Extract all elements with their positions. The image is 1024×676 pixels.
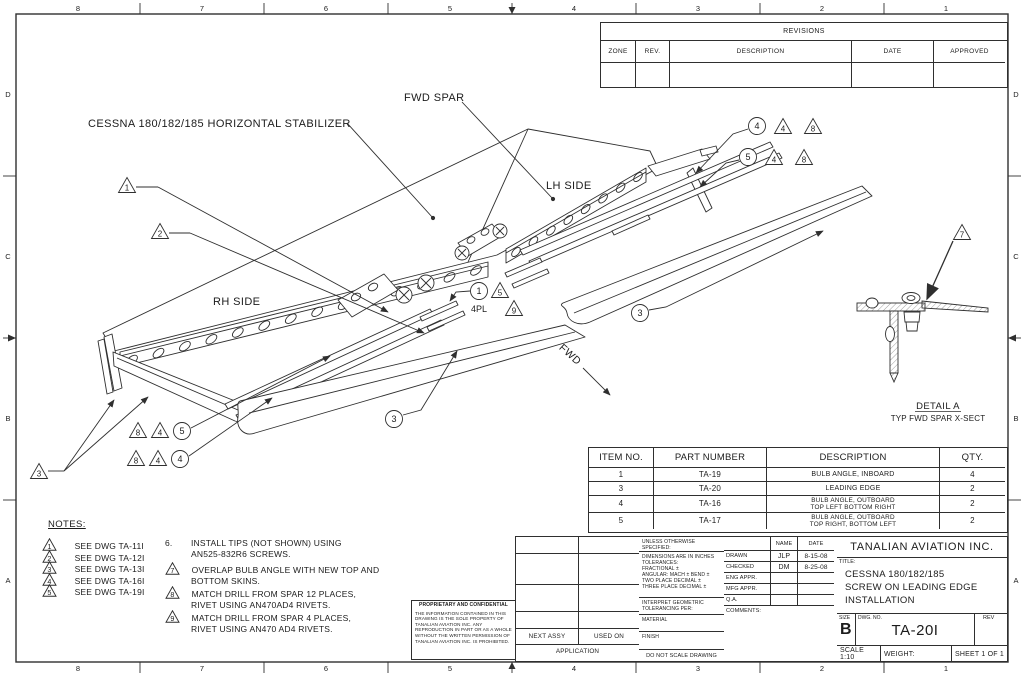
4pl-label: 4PL xyxy=(471,304,487,314)
revisions-table: REVISIONS ZONE REV. DESCRIPTION DATE APP… xyxy=(600,22,1008,88)
stabilizer-label: CESSNA 180/182/185 HORIZONTAL STABILIZER xyxy=(88,118,351,130)
parts-cell-item: 4 xyxy=(589,495,653,512)
signature-block: NAME DATE DRAWN JLP 8-15-08 CHECKED DM 8… xyxy=(724,536,838,662)
svg-text:4: 4 xyxy=(572,4,576,13)
drawn-label: DRAWN xyxy=(724,550,770,561)
svg-text:8: 8 xyxy=(134,457,139,466)
svg-text:8: 8 xyxy=(136,429,141,438)
material-label: MATERIAL xyxy=(639,615,724,632)
note-flag-9: 9 MATCH DRILL FROM SPAR 4 PLACES, RIVET … xyxy=(165,610,351,635)
svg-text:6: 6 xyxy=(324,4,328,13)
svg-text:7: 7 xyxy=(960,231,965,240)
weight-label: WEIGHT: xyxy=(881,646,952,662)
rev-cell: REV xyxy=(975,614,1007,645)
rev-col-zone: ZONE xyxy=(601,41,635,62)
svg-text:A: A xyxy=(1013,576,1018,585)
eng-appr-label: ENG APPR. xyxy=(724,572,770,583)
size-cell: SIZE B xyxy=(837,614,856,645)
svg-text:3: 3 xyxy=(37,470,42,479)
application-table: NEXT ASSY USED ON APPLICATION xyxy=(515,536,640,662)
parts-cell-part: TA-16 xyxy=(653,495,766,512)
size-value: B xyxy=(840,621,852,639)
qa-name xyxy=(770,594,797,605)
detail-a-title: DETAIL A xyxy=(916,401,960,412)
comments-label: COMMENTS: xyxy=(724,605,834,657)
dwg-no-value: TA-20I xyxy=(856,622,974,639)
company-name: TANALIAN AVIATION INC. xyxy=(837,537,1007,558)
sheet-label: SHEET 1 OF 1 xyxy=(952,646,1007,662)
rev-cell-empty xyxy=(851,62,933,87)
svg-text:7: 7 xyxy=(200,664,204,673)
rh-side-label: RH SIDE xyxy=(213,296,260,308)
parts-cell-part: TA-17 xyxy=(653,512,766,529)
tolerance-block: UNLESS OTHERWISE SPECIFIED: DIMENSIONS A… xyxy=(639,536,725,662)
notes-section: NOTES: 1 SEE DWG TA-11I 2 SEE DWG TA-12I… xyxy=(40,515,470,650)
mfg-appr-label: MFG APPR. xyxy=(724,583,770,594)
balloon-5: 5 xyxy=(740,149,757,166)
drawn-date: 8-15-08 xyxy=(797,550,834,561)
svg-text:8: 8 xyxy=(811,125,816,134)
svg-text:2: 2 xyxy=(820,664,824,673)
qa-date xyxy=(797,594,834,605)
parts-cell-desc: BULB ANGLE, OUTBOARDTOP LEFT BOTTOM RIGH… xyxy=(766,495,939,512)
rev-cell-empty xyxy=(601,62,635,87)
flag-7-detail: 7 xyxy=(954,225,971,240)
parts-cell-desc: BULB ANGLE, OUTBOARDTOP RIGHT, BOTTOM LE… xyxy=(766,512,939,529)
parts-cell-part: TA-20 xyxy=(653,481,766,495)
parts-cell-part: TA-19 xyxy=(653,467,766,481)
checked-label: CHECKED xyxy=(724,561,770,572)
note-flag-7: 7 OVERLAP BULB ANGLE WITH NEW TOP AND BO… xyxy=(165,562,379,587)
revisions-title: REVISIONS xyxy=(601,23,1007,41)
parts-table: ITEM NO. PART NUMBER DESCRIPTION QTY. 1 … xyxy=(588,447,1008,533)
title-label: TITLE: xyxy=(839,559,856,565)
drawing-title: TITLE: CESSNA 180/182/185 SCREW ON LEADI… xyxy=(837,558,1007,614)
parts-cell-item: 1 xyxy=(589,467,653,481)
name-col-label: NAME xyxy=(770,537,797,550)
mfg-appr-name xyxy=(770,583,797,594)
balloon-1: 1 xyxy=(471,283,488,300)
parts-cell-qty: 2 xyxy=(939,495,1005,512)
size-dwg-row: SIZE B DWG. NO. TA-20I REV xyxy=(837,614,1007,646)
zone-label: 8 xyxy=(76,4,80,13)
svg-text:2: 2 xyxy=(820,4,824,13)
parts-col-qty: QTY. xyxy=(939,448,1005,467)
eng-appr-date xyxy=(797,572,834,583)
svg-text:4: 4 xyxy=(156,457,161,466)
parts-cell-desc: BULB ANGLE, INBOARD xyxy=(766,467,939,481)
svg-text:8: 8 xyxy=(170,590,174,599)
app-empty xyxy=(578,553,639,584)
parts-cell-qty: 2 xyxy=(939,512,1005,529)
next-assy-label: NEXT ASSY xyxy=(516,628,578,644)
balloon-3-lh: 3 xyxy=(632,305,649,322)
svg-text:1: 1 xyxy=(125,184,130,193)
app-empty xyxy=(516,537,578,553)
checked-date: 8-25-08 xyxy=(797,561,834,572)
app-empty xyxy=(516,584,578,611)
scale-row: SCALE 1:10 WEIGHT: SHEET 1 OF 1 xyxy=(837,646,1007,662)
parts-cell-qty: 2 xyxy=(939,481,1005,495)
title-block: TANALIAN AVIATION INC. TITLE: CESSNA 180… xyxy=(837,536,1008,662)
svg-text:A: A xyxy=(5,576,10,585)
interpret-geometric: INTERPRET GEOMETRICTOLERANCING PER: xyxy=(639,598,724,615)
svg-text:7: 7 xyxy=(170,566,174,575)
svg-text:4: 4 xyxy=(772,156,777,165)
drawing-sheet: 8 7 6 5 4 3 2 1 8 7 6 5 4 3 2 1 D C B A … xyxy=(0,0,1024,676)
note-6: 6.INSTALL TIPS (NOT SHOWN) USING AN525-8… xyxy=(165,538,342,560)
svg-text:5: 5 xyxy=(448,4,452,13)
lh-leading-edge-skin xyxy=(561,186,872,324)
do-not-scale-label: DO NOT SCALE DRAWING xyxy=(639,650,724,662)
svg-text:4: 4 xyxy=(158,429,163,438)
lh-side-label: LH SIDE xyxy=(546,180,592,192)
svg-text:5: 5 xyxy=(745,152,750,162)
flag-1: 1 xyxy=(119,178,136,193)
svg-text:9: 9 xyxy=(170,614,174,623)
unless-label: UNLESS OTHERWISE SPECIFIED: xyxy=(639,537,724,552)
flag-3: 3 xyxy=(31,464,48,479)
rev-cell-empty xyxy=(669,62,851,87)
date-col-label: DATE xyxy=(797,537,834,550)
fwd-spar-label: FWD SPAR xyxy=(404,92,464,104)
rev-col-date: DATE xyxy=(851,41,933,62)
flag-4-l2: 4 xyxy=(150,451,167,466)
svg-text:B: B xyxy=(1013,414,1018,423)
svg-text:1: 1 xyxy=(944,664,948,673)
balloon-5-left: 5 xyxy=(174,423,191,440)
svg-text:D: D xyxy=(1013,90,1019,99)
lh-tip-cap xyxy=(648,146,718,212)
svg-text:B: B xyxy=(5,414,10,423)
detail-a: DETAIL A TYP FWD SPAR X-SECT xyxy=(857,293,988,424)
note-flag-5: 5 SEE DWG TA-19I xyxy=(42,584,145,598)
svg-text:3: 3 xyxy=(637,308,642,318)
app-empty xyxy=(516,553,578,584)
svg-text:8: 8 xyxy=(802,156,807,165)
detail-a-subtitle: TYP FWD SPAR X-SECT xyxy=(891,414,986,423)
dwg-no-cell: DWG. NO. TA-20I xyxy=(856,614,975,645)
flag-8-l1: 8 xyxy=(130,423,147,438)
qa-label: Q.A. xyxy=(724,594,770,605)
parts-cell-qty: 4 xyxy=(939,467,1005,481)
app-empty xyxy=(578,537,639,553)
checked-name: DM xyxy=(770,561,797,572)
svg-text:5: 5 xyxy=(47,588,51,597)
balloon-4: 4 xyxy=(749,118,766,135)
drawn-name: JLP xyxy=(770,550,797,561)
scale-label: SCALE 1:10 xyxy=(837,646,881,662)
flag-8-l2: 8 xyxy=(128,451,145,466)
note-flag-8: 8 MATCH DRILL FROM SPAR 12 PLACES, RIVET… xyxy=(165,586,356,611)
svg-text:5: 5 xyxy=(498,289,503,298)
tolerance-lines: DIMENSIONS ARE IN INCHES TOLERANCES: FRA… xyxy=(639,552,724,598)
flag-8-a: 8 xyxy=(805,119,822,134)
used-on-label: USED ON xyxy=(578,628,639,644)
svg-text:5: 5 xyxy=(179,426,184,436)
fwd-label: FWD xyxy=(557,342,584,368)
svg-text:3: 3 xyxy=(696,664,700,673)
rev-col-approved: APPROVED xyxy=(933,41,1005,62)
rev-col-rev: REV. xyxy=(635,41,669,62)
flag-4-a: 4 xyxy=(775,119,792,134)
sig-empty xyxy=(724,537,770,550)
flag-5-ctr: 5 xyxy=(492,283,509,298)
parts-col-desc: DESCRIPTION xyxy=(766,448,939,467)
flag-9-ctr: 9 xyxy=(506,301,523,316)
svg-text:4: 4 xyxy=(781,125,786,134)
svg-text:3: 3 xyxy=(391,414,396,424)
fwd-direction: FWD xyxy=(557,342,610,395)
notes-title: NOTES: xyxy=(48,519,86,530)
flag-8-b: 8 xyxy=(796,150,813,165)
svg-text:3: 3 xyxy=(696,4,700,13)
parts-cell-item: 3 xyxy=(589,481,653,495)
svg-text:4: 4 xyxy=(754,121,759,131)
mfg-appr-date xyxy=(797,583,834,594)
balloon-3-rh: 3 xyxy=(386,411,403,428)
svg-text:1: 1 xyxy=(944,4,948,13)
svg-text:2: 2 xyxy=(158,230,163,239)
parts-col-part: PART NUMBER xyxy=(653,448,766,467)
svg-text:D: D xyxy=(5,90,11,99)
svg-text:4: 4 xyxy=(572,664,576,673)
app-empty xyxy=(516,611,578,628)
svg-text:6: 6 xyxy=(324,664,328,673)
svg-text:8: 8 xyxy=(76,664,80,673)
svg-text:7: 7 xyxy=(200,4,204,13)
rev-cell-empty xyxy=(635,62,669,87)
parts-cell-item: 5 xyxy=(589,512,653,529)
eng-appr-name xyxy=(770,572,797,583)
svg-text:5: 5 xyxy=(448,664,452,673)
app-empty xyxy=(578,611,639,628)
rev-cell-empty xyxy=(933,62,1005,87)
balloon-4-left: 4 xyxy=(172,451,189,468)
svg-text:4: 4 xyxy=(177,454,182,464)
svg-text:C: C xyxy=(1013,252,1019,261)
rev-col-description: DESCRIPTION xyxy=(669,41,851,62)
svg-text:1: 1 xyxy=(476,286,481,296)
parts-col-item: ITEM NO. xyxy=(589,448,653,467)
svg-text:C: C xyxy=(5,252,11,261)
flag-2: 2 xyxy=(152,224,169,239)
finish-label: FINISH xyxy=(639,632,724,650)
app-empty xyxy=(578,584,639,611)
application-label: APPLICATION xyxy=(516,644,639,657)
parts-cell-desc: LEADING EDGE xyxy=(766,481,939,495)
svg-text:9: 9 xyxy=(512,307,517,316)
flag-4-l1: 4 xyxy=(152,423,169,438)
